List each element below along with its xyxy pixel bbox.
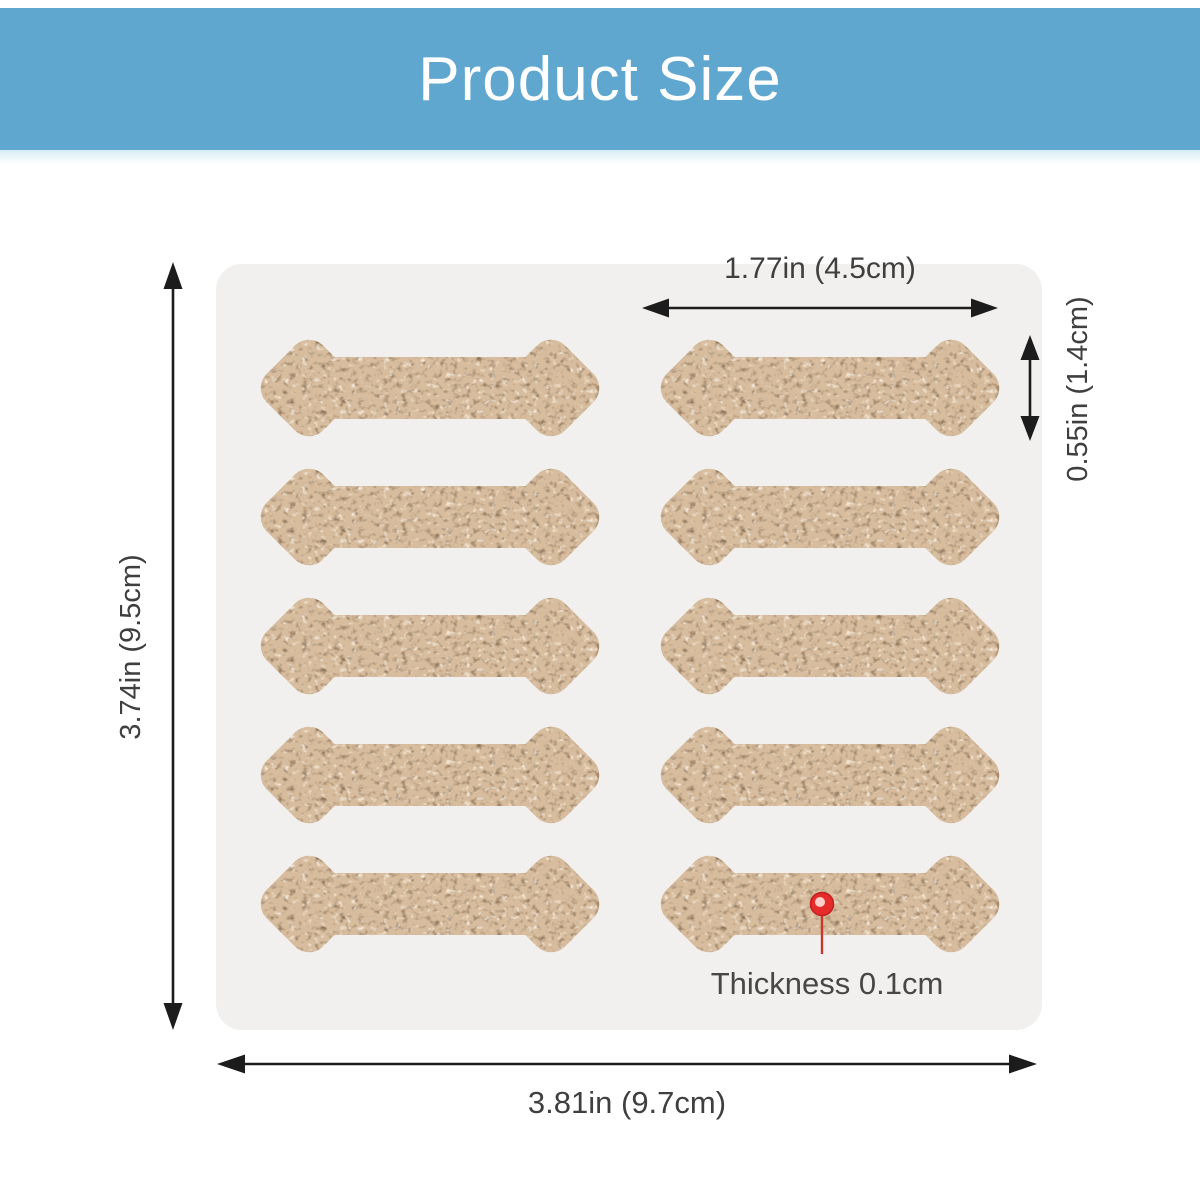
sheet-height-arrow-icon: [161, 262, 185, 1030]
patch-width-arrow-icon: [642, 296, 998, 320]
sheet-width-label: 3.81in (9.7cm): [427, 1086, 827, 1120]
patch-height-label: 0.55in (1.4cm): [1061, 279, 1095, 499]
sheet-width-arrow-icon: [217, 1052, 1037, 1076]
patch-sheet: [216, 264, 1042, 1030]
product-size-infographic: Product Size 1.77in (4.5cm) 0.55in (1.4c…: [0, 0, 1200, 1200]
header-fade-strip: [0, 150, 1200, 164]
thickness-label: Thickness 0.1cm: [627, 967, 1027, 1001]
header-banner: Product Size: [0, 8, 1200, 150]
patch-height-arrow-icon: [1018, 335, 1042, 441]
page-title: Product Size: [418, 44, 782, 115]
patch-width-label: 1.77in (4.5cm): [640, 252, 1000, 286]
sheet-height-label: 3.74in (9.5cm): [114, 537, 148, 757]
thickness-pin-icon: [807, 890, 837, 956]
